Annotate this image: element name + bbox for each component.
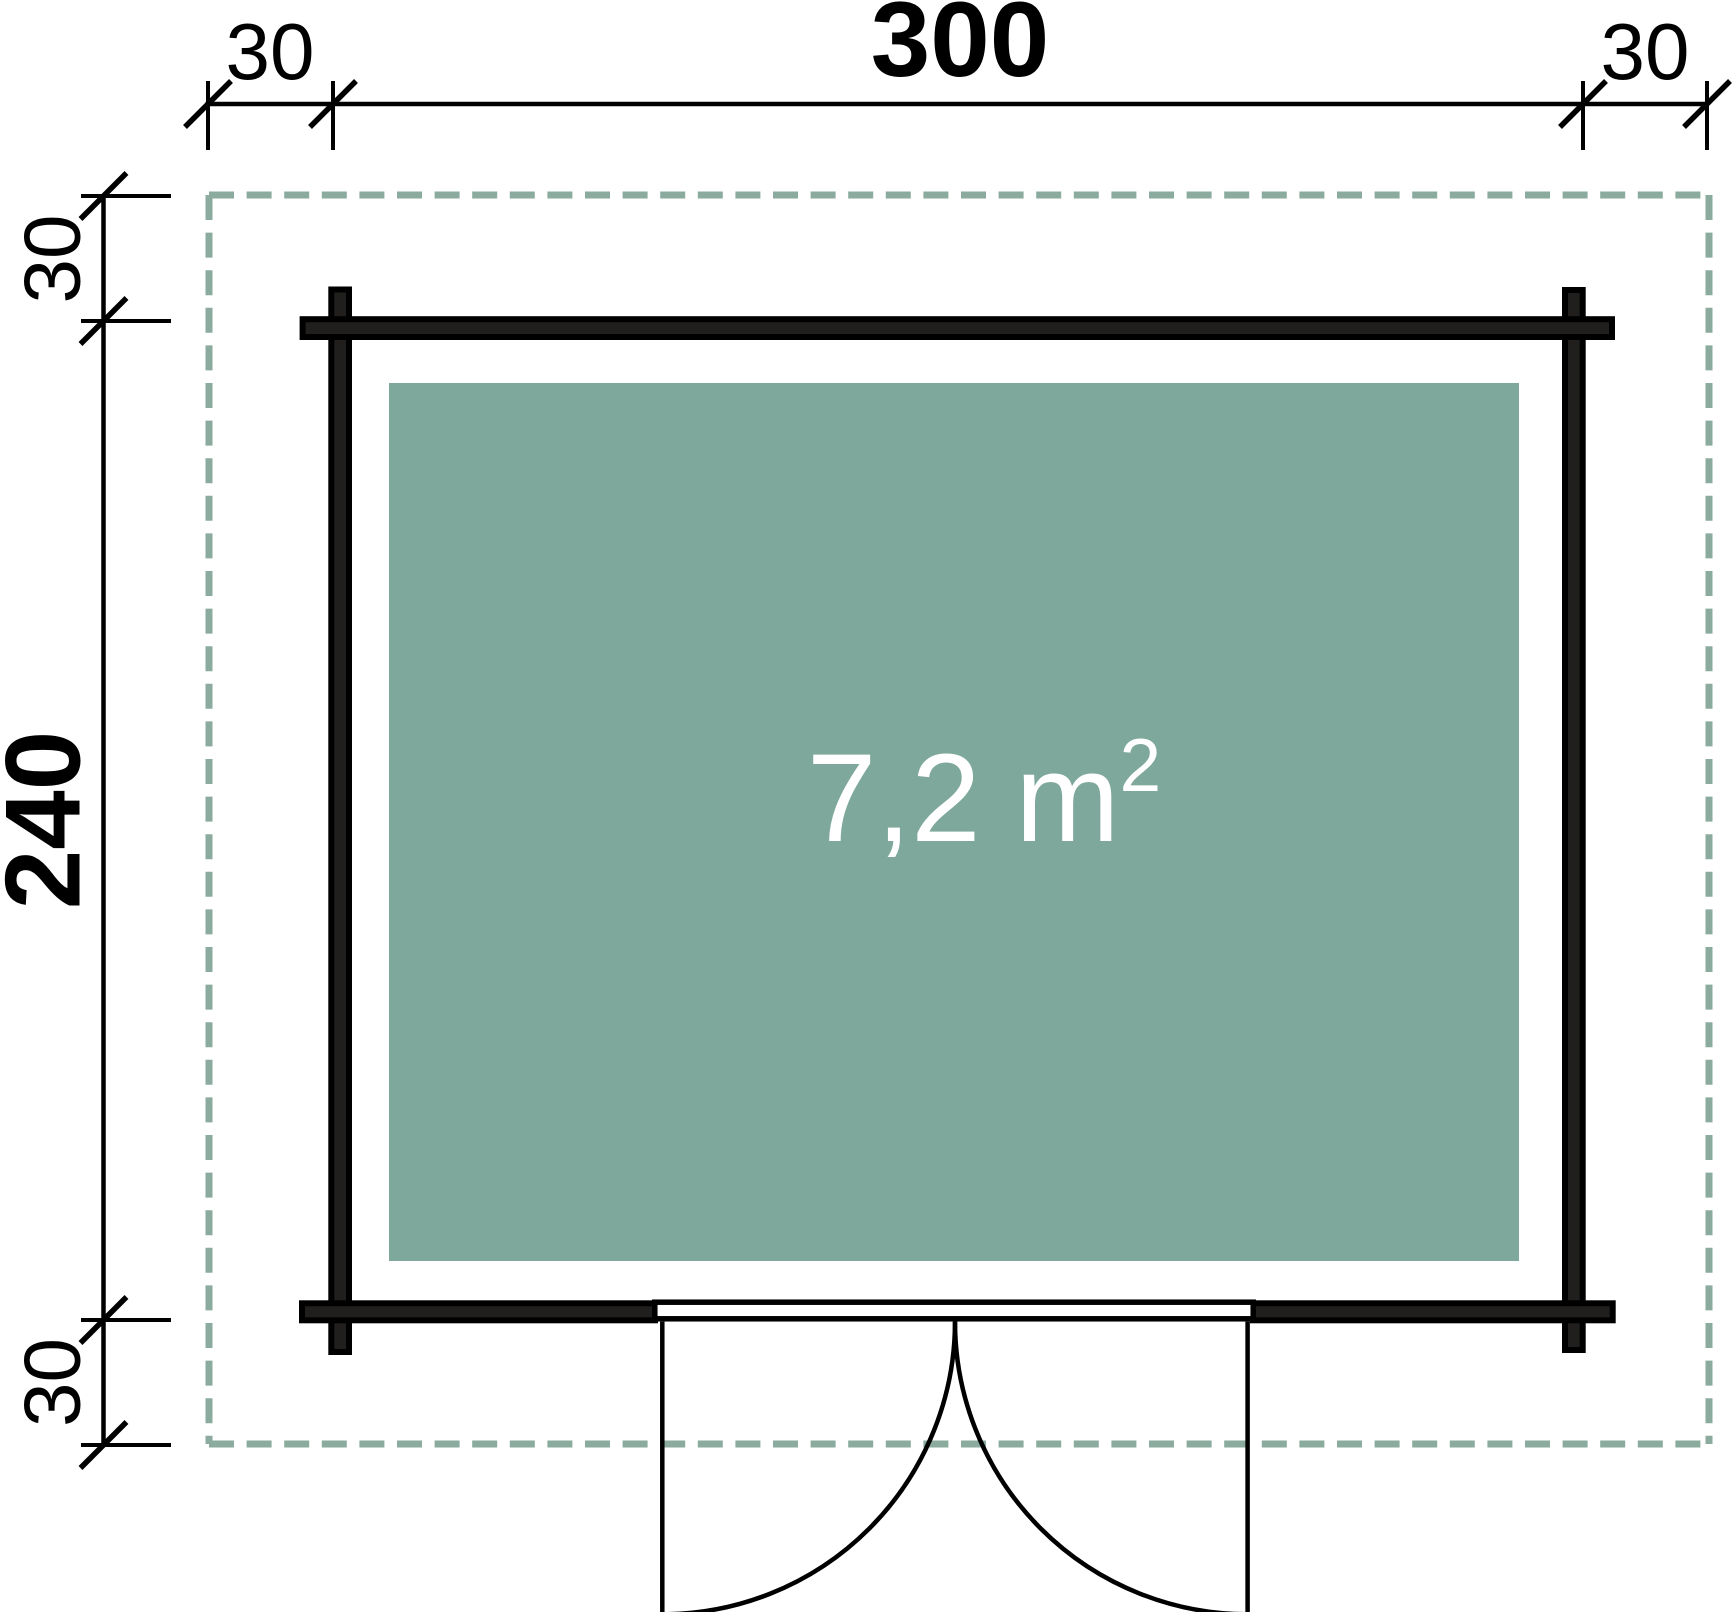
svg-text:240: 240 [0,731,103,910]
svg-text:300: 300 [871,0,1050,99]
svg-text:30: 30 [8,215,97,304]
svg-text:7,2 m2: 7,2 m2 [807,723,1161,868]
svg-text:30: 30 [8,1338,97,1427]
svg-text:30: 30 [226,7,315,96]
svg-text:30: 30 [1601,7,1690,96]
